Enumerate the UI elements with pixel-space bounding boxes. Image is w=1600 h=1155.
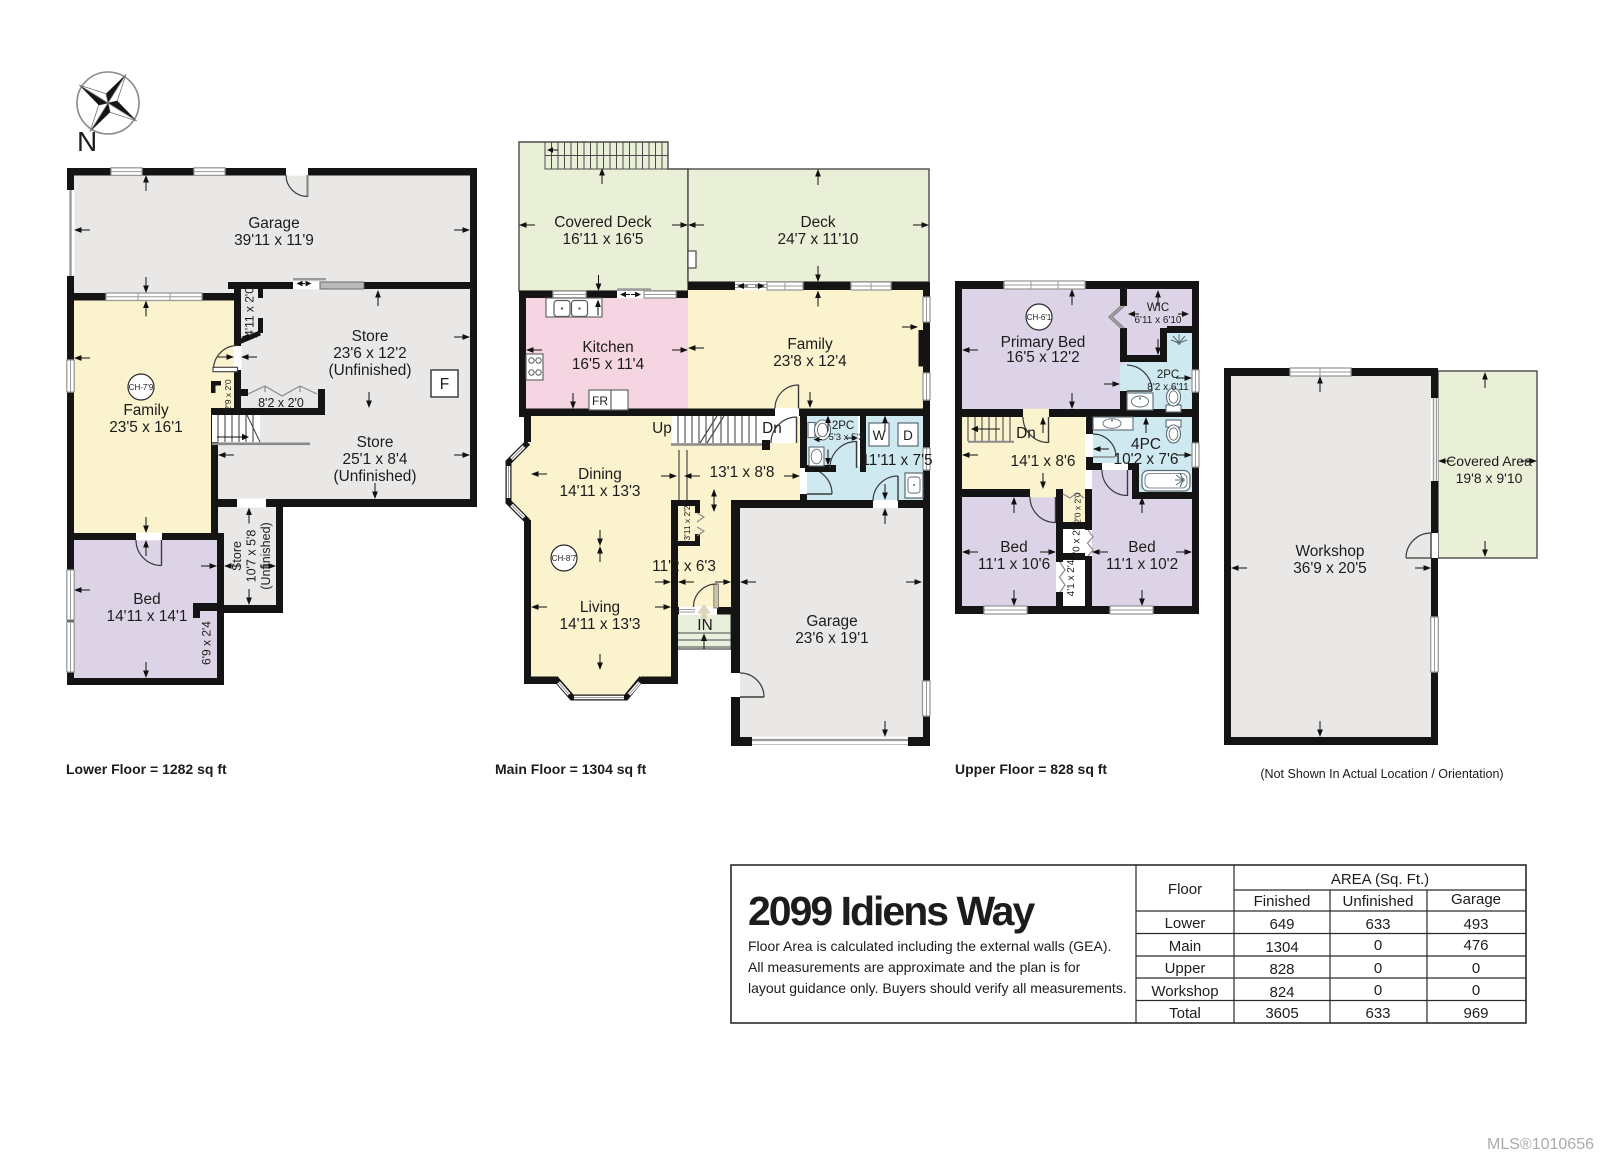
svg-text:Floor: Floor	[1168, 881, 1202, 898]
svg-text:11'1 x 10'6: 11'1 x 10'6	[978, 556, 1050, 573]
svg-text:13'1 x 8'8: 13'1 x 8'8	[710, 464, 775, 481]
svg-text:2PC: 2PC	[1157, 369, 1179, 381]
svg-text:Garage: Garage	[806, 613, 857, 630]
svg-text:Covered Deck: Covered Deck	[554, 214, 652, 231]
svg-text:Finished: Finished	[1254, 893, 1311, 910]
svg-text:824: 824	[1269, 984, 1294, 1001]
svg-text:Upper: Upper	[1165, 960, 1206, 977]
svg-text:23'6 x 12'2: 23'6 x 12'2	[333, 345, 406, 362]
svg-text:Upper Floor = 828 sq ft: Upper Floor = 828 sq ft	[955, 761, 1107, 777]
svg-text:CH-7'9: CH-7'9	[129, 383, 154, 392]
svg-text:19'8 x 9'10: 19'8 x 9'10	[1456, 470, 1523, 486]
svg-text:24'7 x 11'10: 24'7 x 11'10	[778, 231, 859, 248]
svg-text:3'11 x 2'2: 3'11 x 2'2	[682, 505, 692, 540]
svg-text:6'11 x 6'10: 6'11 x 6'10	[1134, 315, 1181, 326]
svg-text:11'1 x 10'2: 11'1 x 10'2	[1106, 556, 1178, 573]
svg-text:Bed: Bed	[133, 591, 160, 608]
svg-text:14'11 x 13'3: 14'11 x 13'3	[560, 483, 641, 500]
svg-text:Dn: Dn	[1016, 425, 1036, 442]
svg-text:Dn: Dn	[762, 420, 782, 437]
svg-text:(Not Shown In Actual Location: (Not Shown In Actual Location / Orientat…	[1260, 767, 1503, 781]
svg-text:Total: Total	[1169, 1005, 1201, 1022]
svg-text:All measurements are approxima: All measurements are approximate and the…	[748, 959, 1081, 975]
svg-text:23'6 x 19'1: 23'6 x 19'1	[795, 630, 868, 647]
svg-text:IN: IN	[697, 617, 712, 634]
svg-text:Main: Main	[1169, 938, 1202, 955]
svg-text:4'11 x 2'0: 4'11 x 2'0	[243, 287, 257, 337]
svg-text:2'0 x 2'0: 2'0 x 2'0	[1073, 492, 1083, 523]
svg-text:W: W	[873, 428, 886, 443]
svg-text:649: 649	[1269, 916, 1294, 933]
svg-text:0: 0	[1472, 982, 1480, 999]
svg-text:Family: Family	[787, 336, 833, 353]
svg-text:14'11 x 14'1: 14'11 x 14'1	[107, 608, 188, 625]
svg-text:Garage: Garage	[1451, 891, 1501, 908]
svg-text:14'11 x 13'3: 14'11 x 13'3	[560, 616, 641, 633]
svg-text:Store: Store	[352, 328, 389, 345]
svg-text:AREA (Sq. Ft.): AREA (Sq. Ft.)	[1331, 871, 1429, 888]
svg-text:Garage: Garage	[248, 215, 299, 232]
svg-text:0: 0	[1472, 960, 1480, 977]
svg-text:layout guidance only. Buyers s: layout guidance only. Buyers should veri…	[748, 980, 1127, 996]
svg-text:14'1 x 8'6: 14'1 x 8'6	[1011, 453, 1076, 470]
svg-text:16'11 x 16'5: 16'11 x 16'5	[563, 231, 644, 248]
svg-text:36'9 x 20'5: 36'9 x 20'5	[1293, 560, 1366, 577]
svg-text:Up: Up	[652, 420, 672, 437]
svg-text:11'2 x 6'3: 11'2 x 6'3	[652, 558, 716, 575]
svg-text:Deck: Deck	[800, 214, 835, 231]
svg-text:N: N	[77, 126, 97, 157]
svg-text:6'9 x 2'4: 6'9 x 2'4	[200, 621, 214, 665]
svg-text:23'8 x 12'4: 23'8 x 12'4	[773, 353, 847, 370]
svg-text:8'2 x 6'11: 8'2 x 6'11	[1147, 382, 1189, 393]
svg-text:969: 969	[1463, 1005, 1488, 1022]
svg-text:493: 493	[1463, 916, 1488, 933]
svg-text:(Unfinished): (Unfinished)	[259, 522, 273, 589]
svg-text:2'9 x 2'0: 2'9 x 2'0	[223, 379, 233, 410]
svg-text:39'11 x 11'9: 39'11 x 11'9	[234, 232, 314, 249]
svg-text:F: F	[440, 376, 449, 393]
svg-text:8'2 x 2'0: 8'2 x 2'0	[258, 396, 304, 410]
svg-text:1304: 1304	[1265, 939, 1298, 956]
svg-text:23'5 x 16'1: 23'5 x 16'1	[109, 419, 182, 436]
svg-text:16'5 x 12'2: 16'5 x 12'2	[1006, 349, 1079, 366]
svg-text:2099 Idiens Way: 2099 Idiens Way	[748, 888, 1035, 934]
svg-text:Floor Area is calculated inclu: Floor Area is calculated including the e…	[748, 938, 1111, 954]
svg-text:Bed: Bed	[1128, 539, 1155, 556]
svg-text:16'5 x 11'4: 16'5 x 11'4	[572, 356, 645, 373]
svg-text:0: 0	[1374, 960, 1382, 977]
svg-text:4'0 x 2'0: 4'0 x 2'0	[1072, 522, 1083, 559]
svg-text:Lower: Lower	[1165, 915, 1206, 932]
svg-text:CH-6'1: CH-6'1	[1027, 313, 1052, 322]
svg-text:(Unfinished): (Unfinished)	[329, 362, 412, 379]
svg-text:Unfinished: Unfinished	[1343, 893, 1414, 910]
svg-text:Workshop: Workshop	[1295, 543, 1364, 560]
svg-text:Store: Store	[357, 434, 394, 451]
svg-text:2PC: 2PC	[832, 420, 854, 432]
svg-text:CH-8'7: CH-8'7	[552, 554, 577, 563]
svg-text:0: 0	[1374, 937, 1382, 954]
svg-text:25'1 x 8'4: 25'1 x 8'4	[343, 451, 408, 468]
svg-text:3605: 3605	[1265, 1005, 1298, 1022]
svg-text:Living: Living	[580, 599, 620, 616]
svg-text:633: 633	[1365, 916, 1390, 933]
svg-text:10'2 x 7'6: 10'2 x 7'6	[1114, 451, 1179, 468]
svg-text:Bed: Bed	[1000, 539, 1027, 556]
svg-text:Dining: Dining	[578, 466, 622, 483]
svg-text:MLS®1010656: MLS®1010656	[1487, 1136, 1594, 1153]
svg-text:0: 0	[1374, 982, 1382, 999]
svg-text:Covered Area: Covered Area	[1446, 453, 1532, 469]
svg-text:Kitchen: Kitchen	[582, 339, 633, 356]
svg-text:Lower Floor = 1282 sq ft: Lower Floor = 1282 sq ft	[66, 761, 227, 777]
svg-text:Workshop: Workshop	[1151, 983, 1218, 1000]
svg-text:476: 476	[1463, 937, 1488, 954]
svg-text:633: 633	[1365, 1005, 1390, 1022]
svg-text:(Unfinished): (Unfinished)	[334, 468, 417, 485]
svg-text:11'11 x 7'5: 11'11 x 7'5	[861, 452, 932, 469]
svg-text:Family: Family	[123, 402, 169, 419]
svg-text:D: D	[903, 428, 913, 443]
svg-text:FR: FR	[592, 394, 608, 408]
svg-text:10'7 x 5'8: 10'7 x 5'8	[245, 530, 259, 583]
svg-text:4'1 x 2'4: 4'1 x 2'4	[1066, 559, 1077, 596]
svg-text:828: 828	[1269, 961, 1294, 978]
svg-text:Main Floor = 1304 sq ft: Main Floor = 1304 sq ft	[495, 761, 647, 777]
